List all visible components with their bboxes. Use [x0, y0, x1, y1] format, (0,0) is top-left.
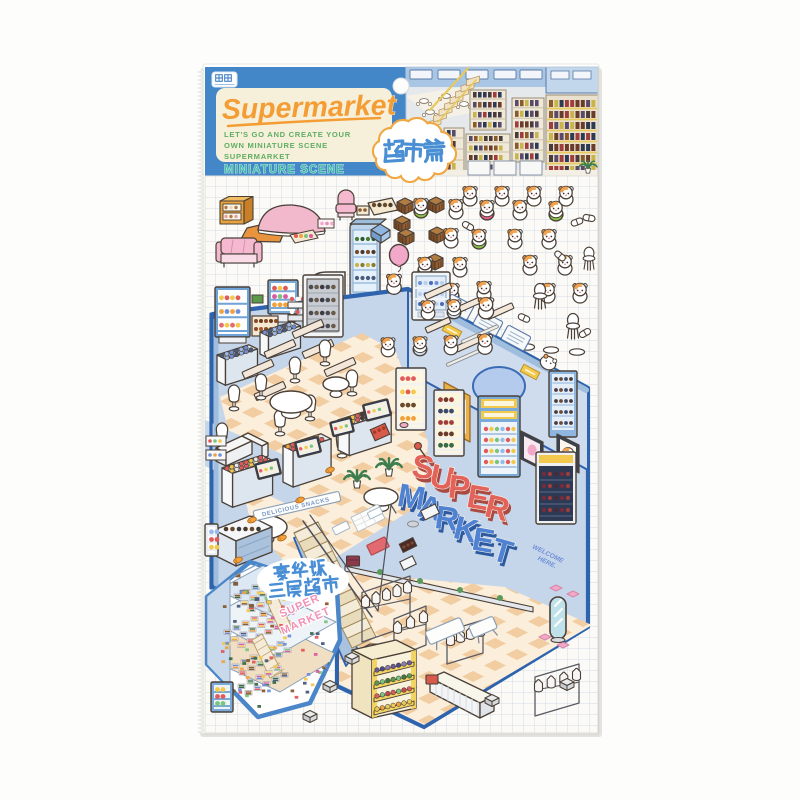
svg-text:MINIATURE SCENE: MINIATURE SCENE	[224, 164, 345, 176]
svg-text:SUPERMARKET: SUPERMARKET	[224, 152, 290, 161]
svg-text:LET'S GO AND CREATE YOUR: LET'S GO AND CREATE YOUR	[224, 130, 351, 139]
svg-text:OWN MINIATURE SCENE: OWN MINIATURE SCENE	[224, 141, 328, 150]
